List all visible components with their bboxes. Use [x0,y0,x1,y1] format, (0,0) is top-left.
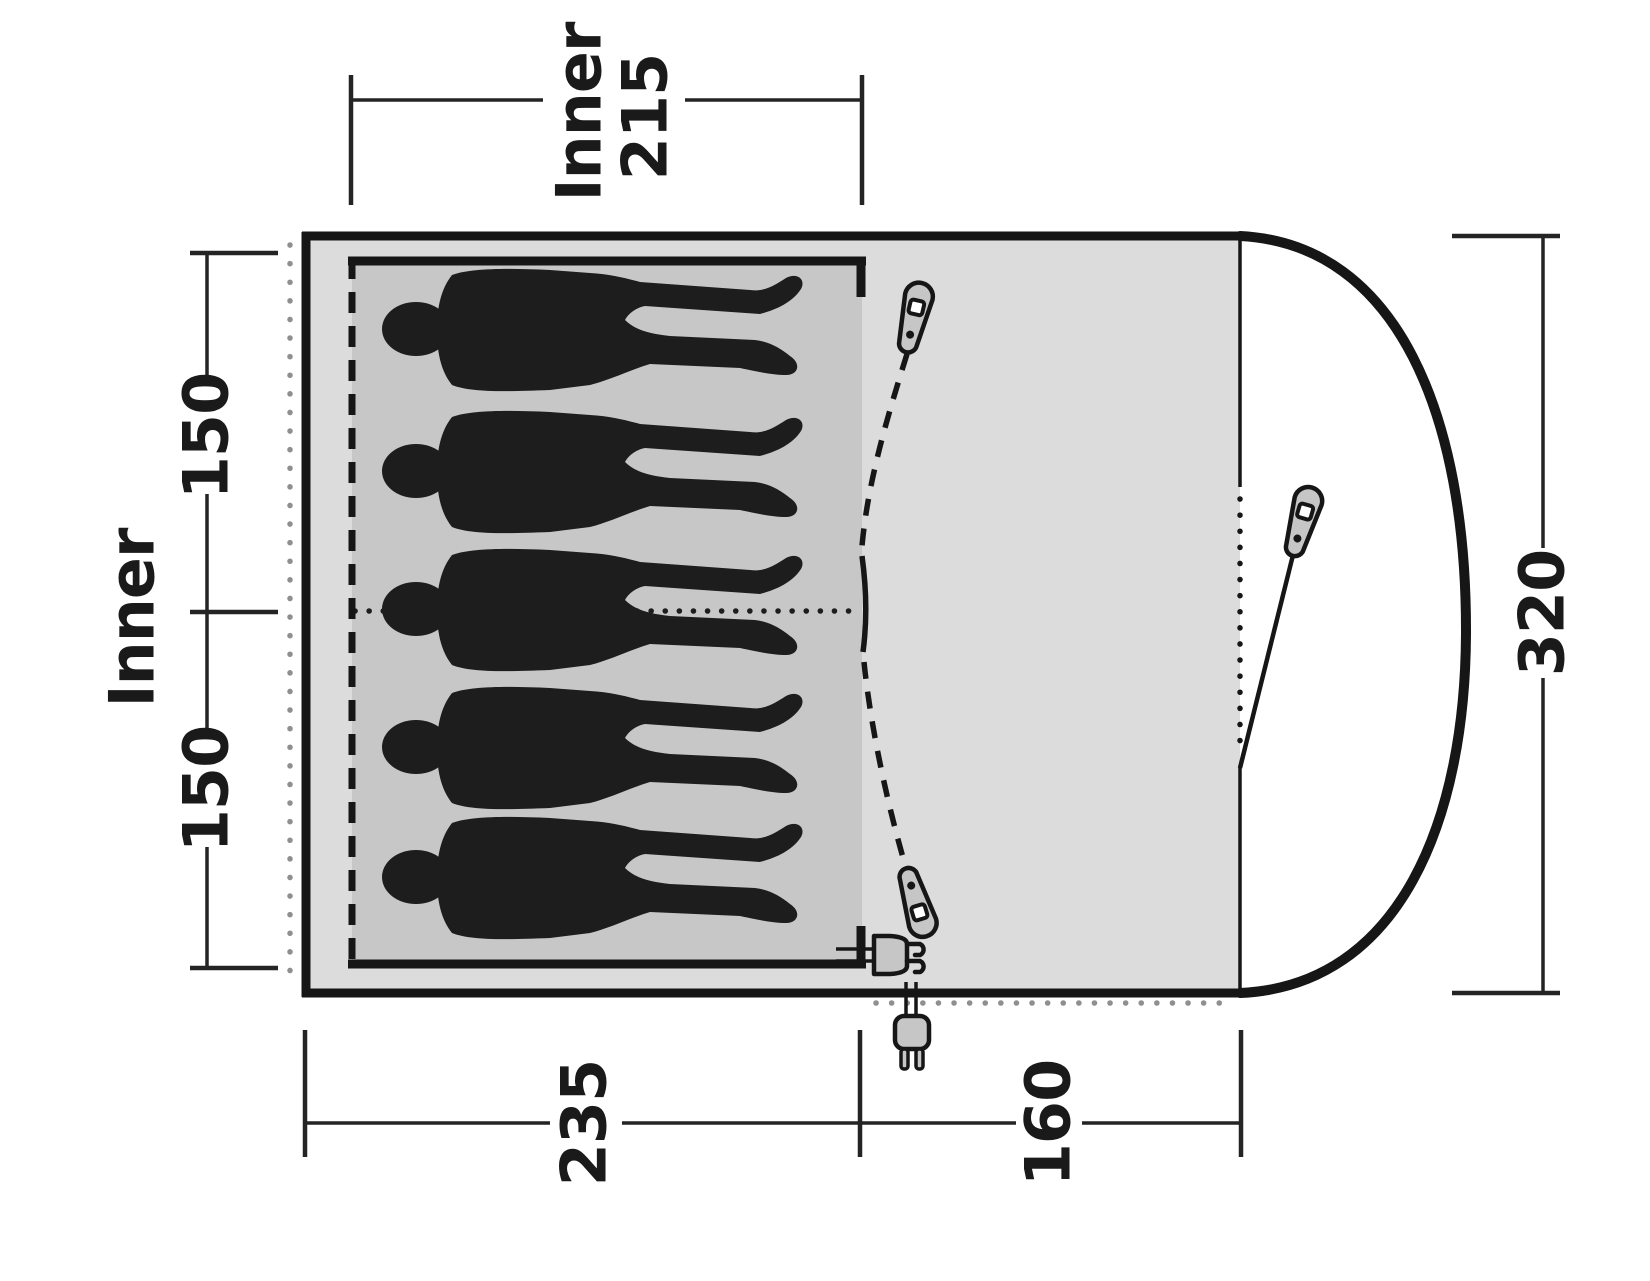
dim-bottom-left-label: 235 [548,1060,621,1186]
dim-left-lower-label: 150 [170,726,243,852]
dim-bottom-right-label: 160 [1012,1060,1085,1186]
porch-area [1240,236,1466,993]
power-plug-icon [895,1016,929,1049]
plug-prong [916,1049,923,1069]
floorplan-canvas: Inner 215 Inner 150 150 320 235 160 [0,0,1650,1281]
dim-left-upper-label: 150 [170,373,243,499]
tent-floorplan-diagram: Inner 215 Inner 150 150 320 235 160 [0,0,1650,1281]
dim-top-label-line1: Inner [543,21,616,201]
power-plug-icon [874,936,907,974]
dim-top-label-line2: 215 [609,54,682,180]
inner-tent [348,258,940,966]
plug-prong [901,1049,908,1069]
dim-right-label: 320 [1506,550,1579,676]
inner-area-label: Inner [96,527,169,707]
